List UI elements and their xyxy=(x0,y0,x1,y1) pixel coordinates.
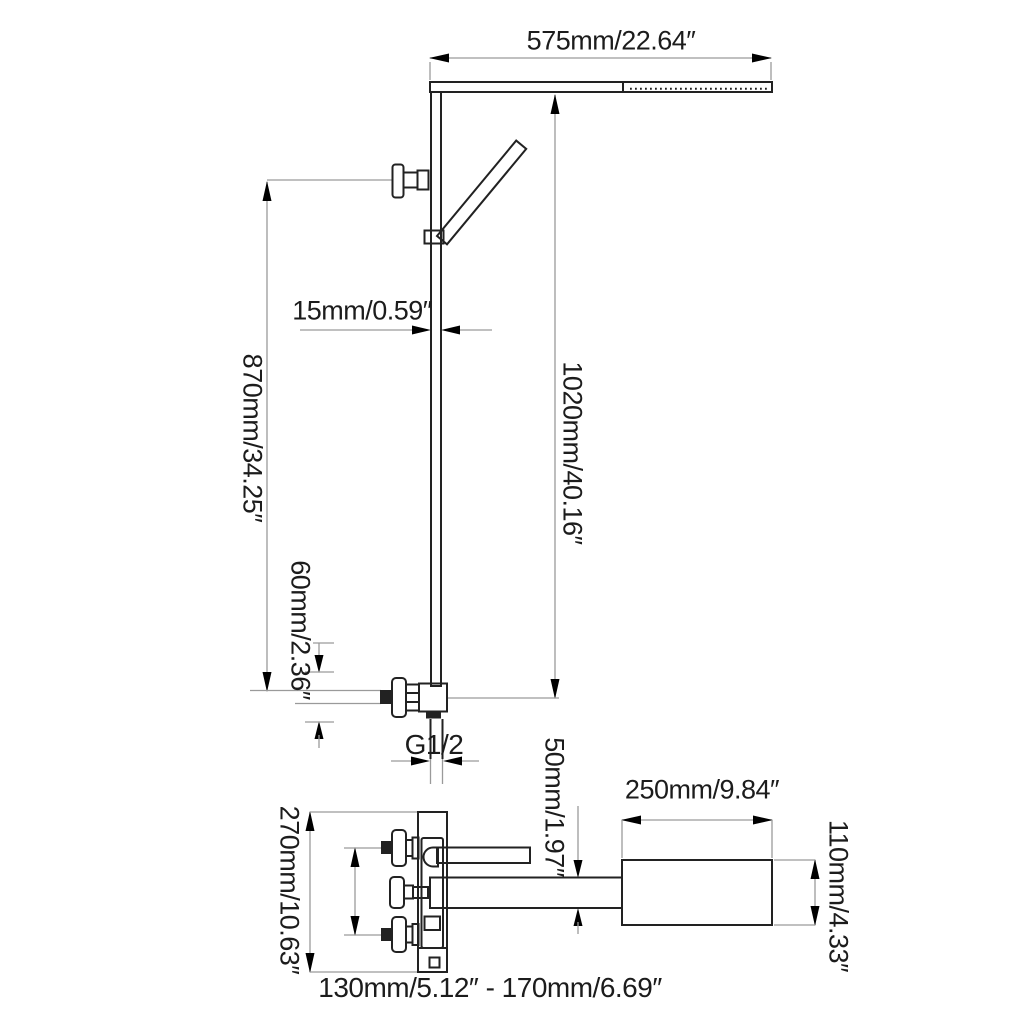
thread-size-label: G1/2 xyxy=(405,729,464,761)
dim-riser-height-label: 1020mm/40.16″ xyxy=(557,361,588,544)
mixer-plate xyxy=(418,812,447,972)
dim-head-length-lines xyxy=(621,816,773,859)
dim-valve-offset-label: 60mm/2.36″ xyxy=(285,560,316,700)
dim-spout-height-label: 50mm/1.97″ xyxy=(539,737,570,877)
dim-head-length-label: 250mm/9.84″ xyxy=(625,775,779,806)
mixer-knob-top xyxy=(381,830,419,866)
dim-arm-width-label: 575mm/22.64″ xyxy=(527,26,696,57)
spout-lever xyxy=(424,848,531,867)
drawing-linework xyxy=(0,0,1024,1024)
dim-bracket-height-label: 870mm/34.25″ xyxy=(237,354,268,523)
dim-plate-height-label: 270mm/10.63″ xyxy=(274,806,305,975)
inlet-spacing-range-label: 130mm/5.12″ - 170mm/6.69″ xyxy=(318,972,662,1004)
dim-riser-height-lines xyxy=(448,94,560,699)
dim-spout-height-lines xyxy=(574,806,583,934)
dim-bar-thickness-lines xyxy=(300,326,492,335)
dim-bar-thickness-label: 15mm/0.59″ xyxy=(292,296,432,327)
shower-arm xyxy=(430,82,772,92)
wall-bracket-knob xyxy=(393,165,429,198)
spout-body xyxy=(430,878,622,909)
hand-shower xyxy=(425,141,527,245)
technical-dimension-drawing: 575mm/22.64″ 15mm/0.59″ 870mm/34.25″ 102… xyxy=(0,0,1024,1024)
shower-head xyxy=(622,860,772,925)
dim-head-width-label: 110mm/4.33″ xyxy=(823,820,854,972)
dim-inlet-spacing-lines xyxy=(344,847,383,936)
mixer-knob-bottom xyxy=(381,917,419,952)
dim-arm-width-lines xyxy=(429,54,772,81)
dim-head-width-lines xyxy=(774,859,820,926)
riser-bar xyxy=(431,92,441,686)
dim-bracket-height-lines xyxy=(250,180,392,692)
